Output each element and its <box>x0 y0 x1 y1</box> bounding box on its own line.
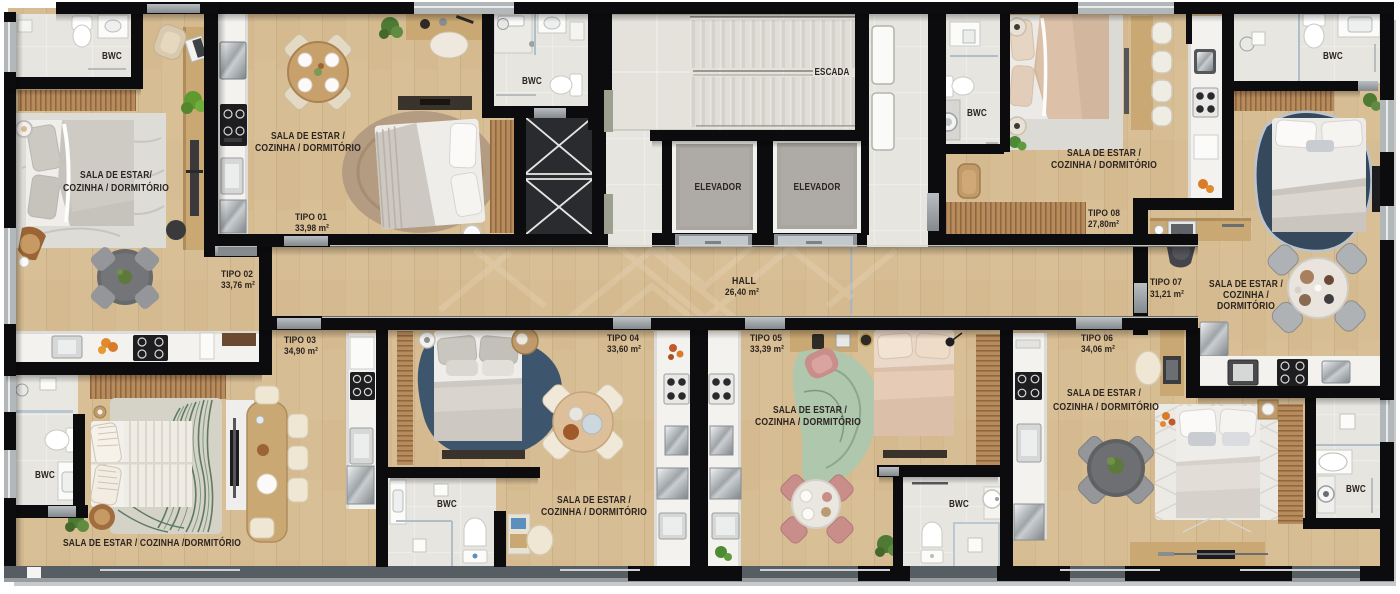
svg-text:SALA DE ESTAR /: SALA DE ESTAR / <box>1067 388 1141 399</box>
svg-text:33,39 m²: 33,39 m² <box>750 344 784 355</box>
svg-text:DORMITÓRIO: DORMITÓRIO <box>1217 299 1275 312</box>
svg-text:SALA DE ESTAR /: SALA DE ESTAR / <box>271 131 345 142</box>
svg-text:COZINHA / DORMITÓRIO: COZINHA / DORMITÓRIO <box>755 415 861 428</box>
svg-text:SALA DE ESTAR /: SALA DE ESTAR / <box>1209 279 1283 290</box>
svg-text:HALL: HALL <box>732 276 756 287</box>
svg-text:SALA DE ESTAR/: SALA DE ESTAR/ <box>80 170 152 181</box>
svg-text:SALA DE ESTAR /: SALA DE ESTAR / <box>557 495 631 506</box>
svg-text:COZINHA /: COZINHA / <box>1223 290 1269 301</box>
svg-text:27,80m²: 27,80m² <box>1088 219 1119 230</box>
svg-text:BWC: BWC <box>35 470 55 481</box>
svg-text:TIPO 04: TIPO 04 <box>607 333 640 344</box>
svg-text:BWC: BWC <box>522 76 542 87</box>
svg-text:TIPO 03: TIPO 03 <box>284 335 316 346</box>
svg-text:TIPO 07: TIPO 07 <box>1150 277 1182 288</box>
svg-text:COZINHA / DORMITÓRIO: COZINHA / DORMITÓRIO <box>1053 400 1159 413</box>
svg-text:ELEVADOR: ELEVADOR <box>794 182 841 193</box>
svg-text:SALA DE ESTAR /: SALA DE ESTAR / <box>773 405 847 416</box>
svg-text:COZINHA / DORMITÓRIO: COZINHA / DORMITÓRIO <box>1051 158 1157 171</box>
svg-text:BWC: BWC <box>967 108 987 119</box>
svg-text:TIPO 08: TIPO 08 <box>1088 208 1120 219</box>
svg-text:33,76 m²: 33,76 m² <box>221 280 255 291</box>
svg-text:TIPO 05: TIPO 05 <box>750 333 783 344</box>
svg-text:26,40 m²: 26,40 m² <box>725 287 759 298</box>
svg-text:BWC: BWC <box>1323 51 1343 62</box>
svg-text:SALA DE ESTAR / COZINHA /DORMI: SALA DE ESTAR / COZINHA /DORMITÓRIO <box>63 536 241 549</box>
svg-text:COZINHA / DORMITÓRIO: COZINHA / DORMITÓRIO <box>63 181 169 194</box>
svg-text:34,06 m²: 34,06 m² <box>1081 344 1115 355</box>
svg-text:ELEVADOR: ELEVADOR <box>695 182 742 193</box>
svg-text:BWC: BWC <box>1346 484 1366 495</box>
svg-text:SALA DE ESTAR /: SALA DE ESTAR / <box>1067 148 1141 159</box>
svg-text:TIPO 06: TIPO 06 <box>1081 333 1113 344</box>
svg-text:COZINHA / DORMITÓRIO: COZINHA / DORMITÓRIO <box>541 505 647 518</box>
svg-text:34,90 m²: 34,90 m² <box>284 346 318 357</box>
svg-text:33,60 m²: 33,60 m² <box>607 344 641 355</box>
svg-text:BWC: BWC <box>102 51 122 62</box>
svg-text:33,98 m²: 33,98 m² <box>295 223 329 234</box>
svg-text:BWC: BWC <box>437 499 457 510</box>
svg-text:BWC: BWC <box>949 499 969 510</box>
svg-text:ESCADA: ESCADA <box>815 67 850 78</box>
svg-text:TIPO 01: TIPO 01 <box>295 212 328 223</box>
svg-text:31,21 m²: 31,21 m² <box>1150 289 1184 300</box>
svg-text:TIPO 02: TIPO 02 <box>221 269 253 280</box>
svg-text:COZINHA / DORMITÓRIO: COZINHA / DORMITÓRIO <box>255 141 361 154</box>
